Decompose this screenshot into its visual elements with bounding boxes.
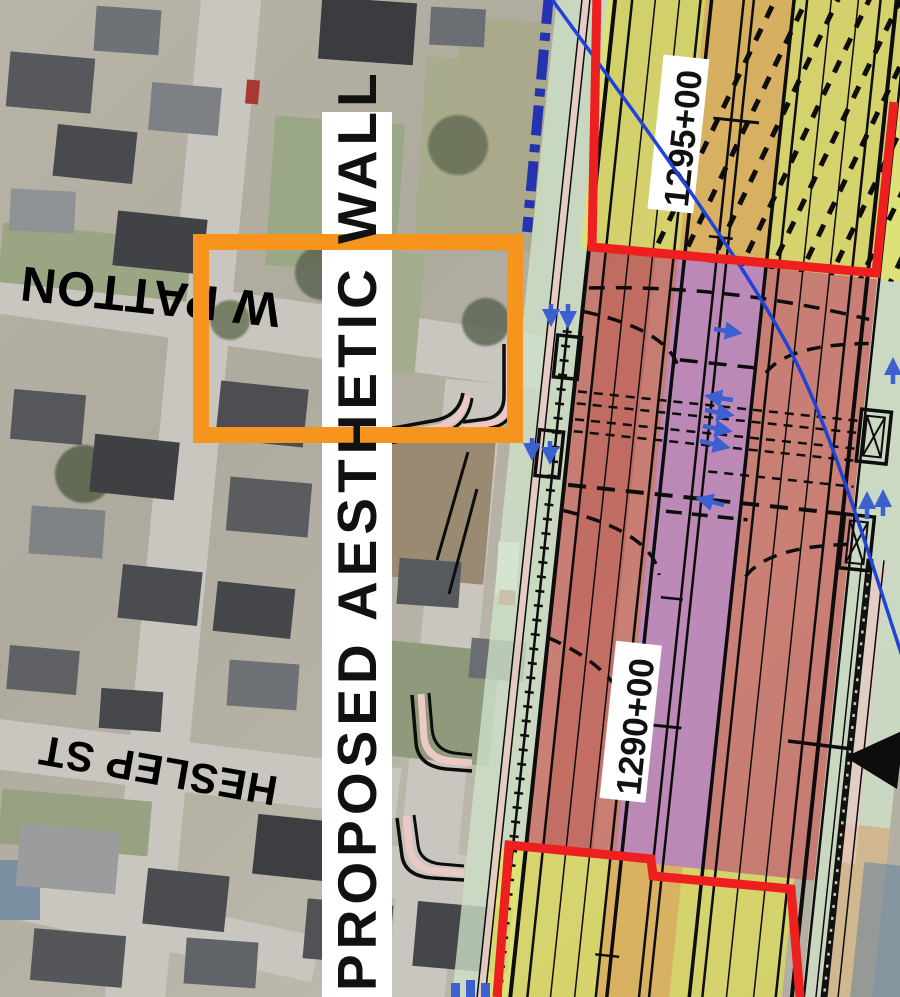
proposed-aesthetic-wall-label: PROPOSED AESTHETIC WALL [322, 112, 392, 997]
right-arrow-icon [714, 329, 734, 332]
plan-overlay: 1295+00 1290+00 [0, 0, 900, 997]
left-arrow-icon [713, 397, 733, 400]
plan-sheet: 1295+00 1290+00 [0, 0, 900, 997]
